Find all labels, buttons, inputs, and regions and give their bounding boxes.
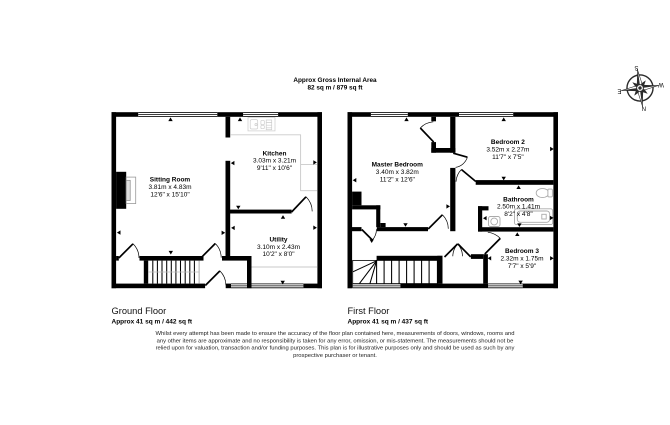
svg-text:Bedroom 2: Bedroom 2 [491, 139, 525, 146]
svg-text:3.52m x 2.27m: 3.52m x 2.27m [486, 146, 529, 153]
svg-text:Bedroom 3: Bedroom 3 [505, 248, 539, 255]
svg-text:7'7" x 5'9": 7'7" x 5'9" [508, 263, 537, 270]
svg-text:Kitchen: Kitchen [263, 150, 287, 157]
svg-text:relied upon for valuation, tra: relied upon for valuation, transaction a… [156, 346, 515, 352]
svg-text:N: N [642, 105, 646, 111]
svg-text:3.81m x 4.83m: 3.81m x 4.83m [149, 184, 192, 191]
svg-text:Sitting Room: Sitting Room [150, 177, 191, 184]
svg-text:any other items are approximat: any other items are approximate and no r… [157, 338, 514, 344]
svg-text:9'11" x 10'6": 9'11" x 10'6" [257, 165, 293, 172]
svg-text:Whilst every attempt has been: Whilst every attempt has been made to en… [156, 331, 515, 337]
svg-text:Approx 41 sq m / 437 sq ft: Approx 41 sq m / 437 sq ft [348, 319, 429, 326]
svg-text:Master Bedroom: Master Bedroom [372, 162, 424, 169]
svg-text:First Floor: First Floor [348, 306, 390, 316]
svg-text:82 sq m / 879 sq ft: 82 sq m / 879 sq ft [307, 84, 363, 91]
svg-text:Bathroom: Bathroom [503, 196, 534, 203]
svg-text:prospective purchaser or tenan: prospective purchaser or tenant. [293, 353, 377, 359]
svg-text:3.10m x 2.43m: 3.10m x 2.43m [257, 244, 300, 251]
svg-text:Ground Floor: Ground Floor [112, 306, 167, 316]
svg-text:Utility: Utility [269, 236, 287, 243]
svg-text:11'2" x 12'6": 11'2" x 12'6" [380, 177, 416, 184]
svg-text:E: E [617, 88, 621, 94]
svg-text:2.32m x 1.75m: 2.32m x 1.75m [501, 256, 544, 263]
svg-text:Approx 41 sq m / 442 sq ft: Approx 41 sq m / 442 sq ft [112, 319, 193, 326]
svg-text:8'2" x 4'8": 8'2" x 4'8" [504, 211, 533, 218]
svg-text:2.50m x 1.41m: 2.50m x 1.41m [497, 204, 540, 211]
svg-text:10'2" x 8'0": 10'2" x 8'0" [262, 251, 295, 258]
svg-text:W: W [658, 81, 664, 87]
svg-text:12'6" x 15'10": 12'6" x 15'10" [150, 191, 190, 198]
svg-text:3.40m x 3.82m: 3.40m x 3.82m [376, 169, 419, 176]
svg-text:S: S [634, 64, 638, 70]
svg-text:11'7" x 7'5": 11'7" x 7'5" [492, 154, 524, 161]
svg-text:3.03m x 3.21m: 3.03m x 3.21m [253, 158, 296, 165]
svg-text:Approx Gross Internal Area: Approx Gross Internal Area [293, 77, 377, 84]
